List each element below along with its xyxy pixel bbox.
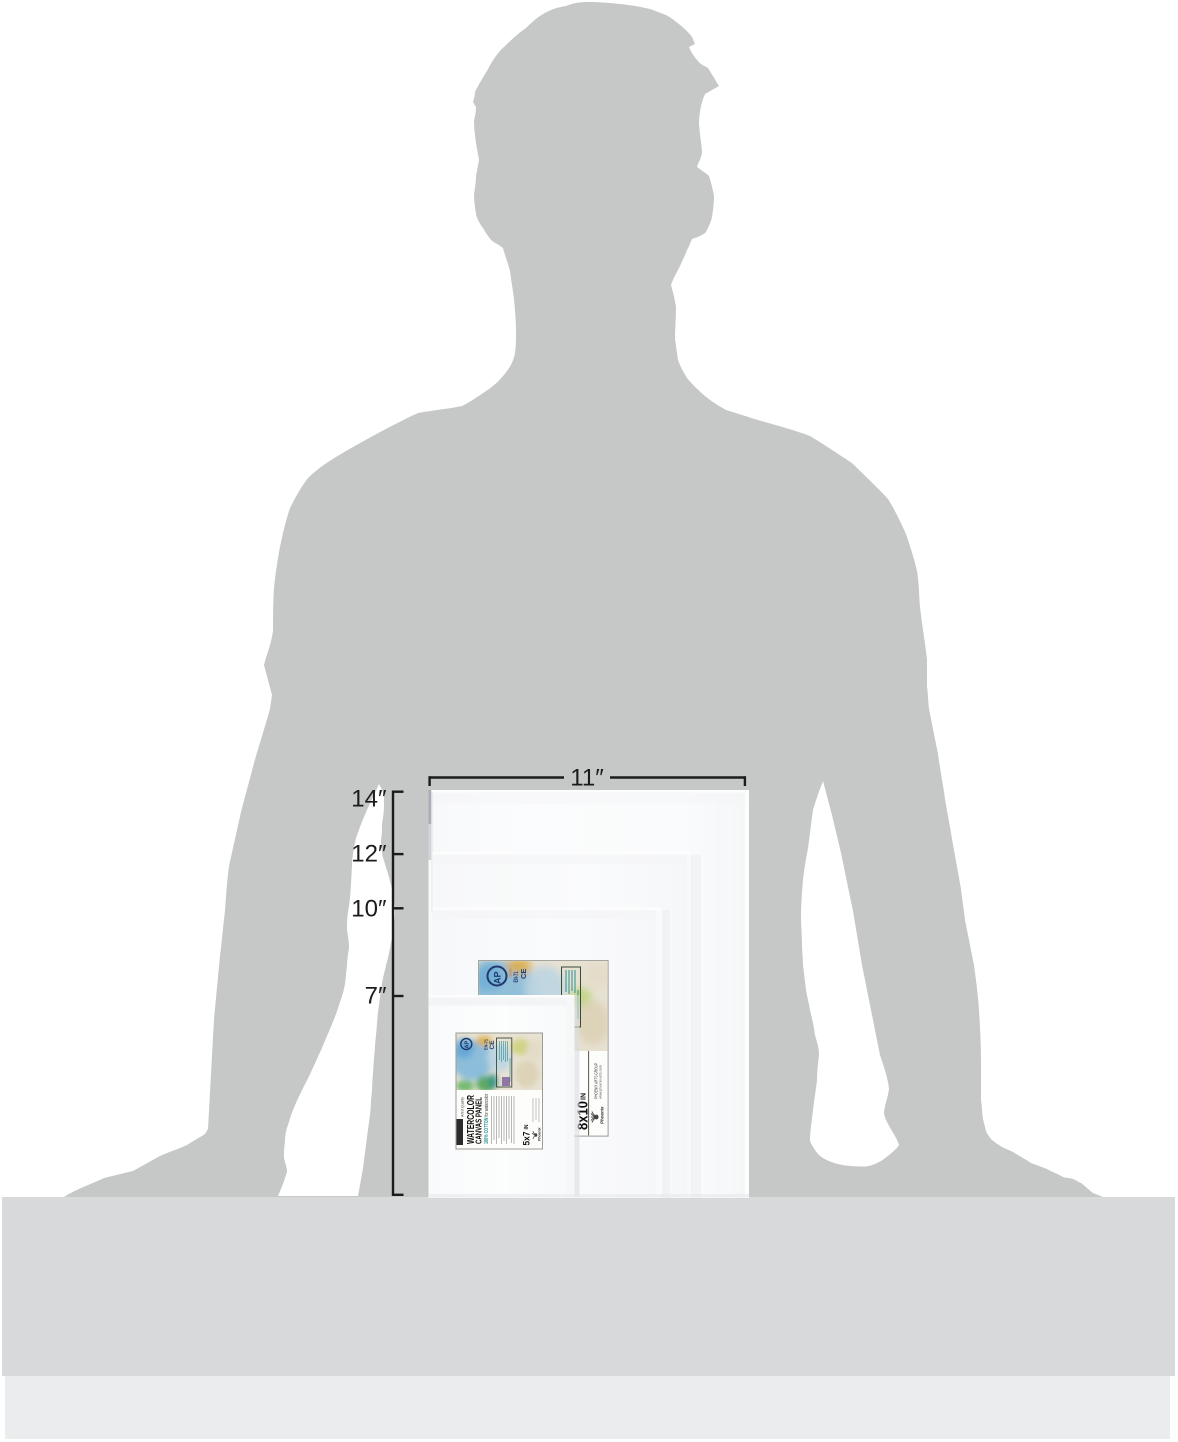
svg-text:10″: 10″: [351, 896, 387, 923]
svg-text:conforms: conforms: [509, 968, 513, 977]
svg-text:IN: IN: [524, 1124, 530, 1129]
svg-text:CANVAS PANEL: CANVAS PANEL: [474, 1097, 484, 1144]
svg-text:14″: 14″: [351, 786, 387, 813]
svg-text:AP: AP: [493, 971, 503, 984]
svg-text:11″: 11″: [570, 765, 604, 792]
svg-text:100% COTTON for watercolor: 100% COTTON for watercolor: [484, 1094, 490, 1144]
svg-text:EN-71: EN-71: [484, 1039, 489, 1050]
svg-text:www.phoenix-arts.com: www.phoenix-arts.com: [598, 1064, 603, 1099]
svg-text:CE: CE: [489, 1040, 496, 1050]
svg-text:AP: AP: [465, 1041, 471, 1049]
svg-text:7″: 7″: [365, 983, 387, 1010]
svg-text:Artist Quality: Artist Quality: [461, 1097, 465, 1117]
svg-text:5x7: 5x7: [522, 1132, 533, 1146]
svg-text:Phoenix: Phoenix: [600, 1106, 605, 1124]
svg-text:IN: IN: [581, 1093, 588, 1100]
svg-text:Phoenix: Phoenix: [538, 1126, 542, 1141]
svg-text:12″: 12″: [351, 841, 387, 868]
svg-text:CE: CE: [519, 969, 528, 979]
